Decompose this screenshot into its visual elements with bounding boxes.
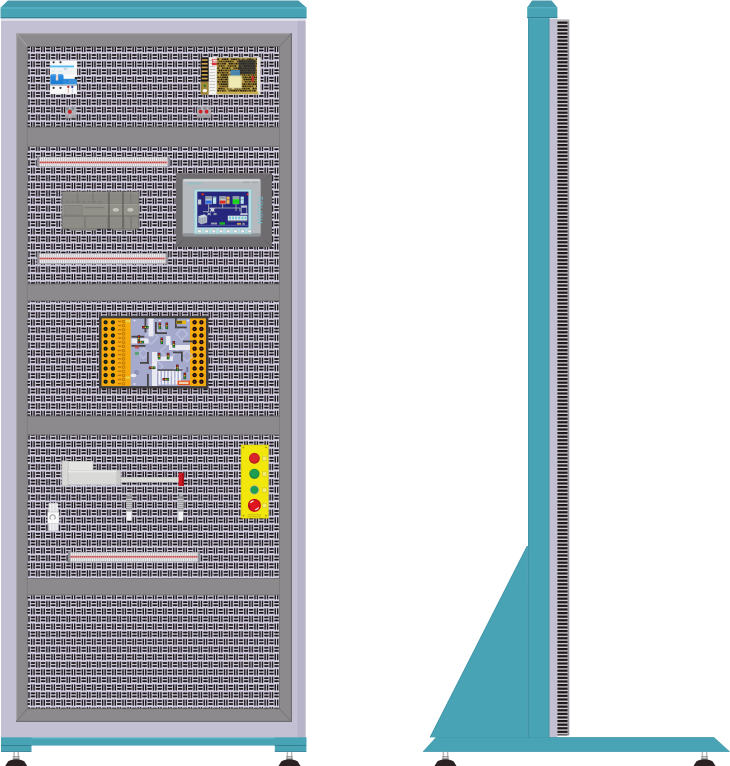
svg-text:SIEMENS: SIEMENS bbox=[187, 181, 202, 185]
svg-text:TOUCH: TOUCH bbox=[256, 196, 265, 224]
